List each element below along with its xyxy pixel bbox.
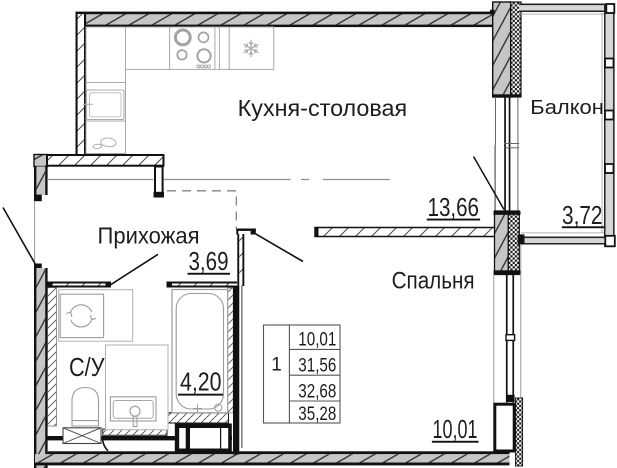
svg-text:1: 1 bbox=[271, 355, 282, 376]
svg-text:4,20: 4,20 bbox=[180, 367, 222, 397]
svg-text:31,56: 31,56 bbox=[298, 356, 336, 377]
svg-text:3,69: 3,69 bbox=[189, 246, 229, 276]
svg-text:С/У: С/У bbox=[69, 352, 105, 382]
svg-text:Прихожая: Прихожая bbox=[98, 223, 200, 249]
svg-text:3,72: 3,72 bbox=[562, 200, 603, 230]
svg-text:32,68: 32,68 bbox=[298, 381, 336, 402]
svg-text:10,01: 10,01 bbox=[298, 330, 336, 351]
svg-text:Кухня-столовая: Кухня-столовая bbox=[238, 95, 407, 121]
svg-text:13,66: 13,66 bbox=[428, 192, 480, 222]
svg-text:Балкон: Балкон bbox=[530, 96, 604, 119]
svg-text:10,01: 10,01 bbox=[433, 414, 478, 444]
svg-text:35,28: 35,28 bbox=[298, 404, 336, 425]
svg-text:Спальня: Спальня bbox=[392, 268, 475, 295]
